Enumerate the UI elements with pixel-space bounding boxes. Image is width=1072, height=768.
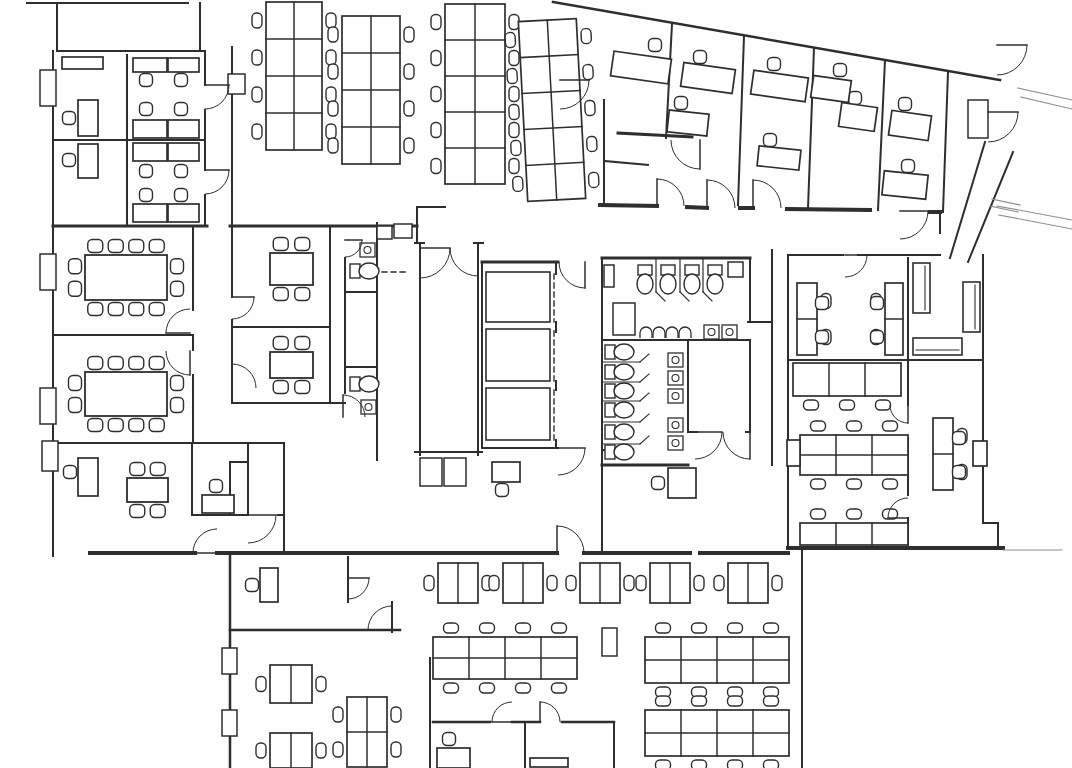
door-swing (657, 179, 684, 206)
door-swing (723, 432, 750, 459)
chair (404, 27, 414, 42)
chair (175, 103, 188, 116)
door-swing (232, 364, 256, 388)
chair (333, 707, 343, 722)
chair (585, 100, 596, 116)
desk (260, 568, 278, 602)
desk-bank (504, 18, 599, 202)
chair (140, 74, 153, 87)
chair (714, 576, 724, 591)
conference-table (270, 253, 313, 285)
chair (130, 505, 145, 518)
toilet-bowl (660, 274, 676, 294)
elevator-cell (486, 388, 550, 440)
chair (63, 112, 76, 125)
chair (728, 696, 743, 706)
chair (404, 64, 414, 79)
chair (728, 623, 743, 633)
chair (834, 64, 847, 77)
chair (516, 683, 531, 693)
door-swing (997, 45, 1027, 75)
door-arc (205, 170, 229, 194)
chair (404, 101, 414, 116)
chair (581, 28, 592, 44)
chair (840, 400, 855, 410)
door-swing (559, 262, 585, 288)
toilet (605, 424, 634, 440)
chair (256, 677, 266, 692)
desk-bank (645, 623, 789, 697)
desk (437, 748, 470, 768)
chair (489, 576, 499, 591)
desk-bank (489, 563, 557, 603)
desk-bank (333, 697, 401, 767)
door-swing (205, 170, 229, 194)
toilet (605, 402, 634, 418)
chair (129, 303, 144, 316)
sink-counter (668, 371, 683, 385)
chair (692, 623, 707, 633)
chair (149, 419, 164, 432)
desk (78, 100, 98, 136)
desk (668, 468, 696, 498)
sink (653, 327, 665, 338)
chair (586, 136, 597, 152)
chair (847, 509, 862, 519)
chair (171, 259, 184, 274)
conference-table (85, 255, 167, 300)
door-swing (540, 702, 560, 722)
desk (800, 523, 908, 545)
chair (69, 259, 82, 274)
chair (847, 479, 862, 489)
desk-bank (328, 16, 414, 164)
stall-partition (640, 414, 649, 422)
window-line (992, 199, 1020, 205)
chair (636, 576, 646, 591)
pilaster (728, 262, 743, 277)
chair (404, 138, 414, 153)
chair (876, 400, 891, 410)
door-swing (348, 578, 369, 599)
door-swing (900, 211, 928, 239)
pilaster (444, 458, 466, 486)
chair (108, 357, 123, 370)
pilaster (42, 441, 58, 471)
chair (273, 238, 288, 251)
door-swing (492, 702, 512, 722)
chair (273, 288, 288, 301)
sink-counter (722, 325, 737, 339)
desk (530, 758, 568, 767)
chair (108, 419, 123, 432)
chair (692, 696, 707, 706)
chair (328, 64, 338, 79)
chair (88, 240, 103, 253)
chair (252, 50, 262, 65)
chair (252, 124, 262, 139)
door-arc (997, 45, 1027, 75)
chair (509, 123, 519, 138)
chair (509, 51, 519, 66)
chair (511, 140, 522, 156)
chair (140, 103, 153, 116)
chair (656, 696, 671, 706)
desk (973, 441, 987, 466)
wall (738, 36, 744, 205)
chair (431, 87, 441, 102)
chair (953, 466, 966, 479)
desk (667, 110, 709, 136)
wall (968, 152, 1013, 262)
chair (129, 240, 144, 253)
chair (328, 138, 338, 153)
desk-bank (566, 563, 634, 603)
door-arc (540, 702, 560, 722)
desk-bank (256, 665, 326, 703)
conference-table (270, 352, 313, 378)
desk-bank (252, 2, 336, 150)
desk-bank (431, 4, 519, 184)
chair (588, 172, 599, 188)
chair (326, 124, 336, 139)
window-line (997, 206, 1072, 220)
chair (175, 74, 188, 87)
desk-bank (800, 509, 908, 545)
chair (69, 398, 82, 413)
pilaster (394, 224, 412, 238)
chair (326, 87, 336, 102)
chair (509, 159, 519, 174)
chair (444, 623, 459, 633)
chair (902, 160, 915, 173)
desk (787, 440, 800, 466)
chair (871, 331, 884, 344)
desk (751, 70, 809, 101)
chair (804, 400, 819, 410)
desk (168, 204, 199, 222)
chair (150, 505, 165, 518)
desk (793, 363, 901, 396)
chair (273, 381, 288, 394)
chair (326, 50, 336, 65)
desk (133, 143, 167, 161)
stall-partition (703, 292, 712, 301)
door-arc (657, 179, 684, 206)
door-arc (232, 364, 256, 388)
door-arc (845, 255, 867, 277)
desk-bank (424, 563, 492, 603)
door-swing (988, 112, 1018, 142)
door-swing (753, 180, 781, 208)
toilet (605, 344, 634, 360)
desk (78, 144, 98, 178)
desk (133, 58, 167, 72)
wall (787, 209, 870, 210)
door-arc (558, 448, 585, 475)
sink (668, 418, 683, 432)
couch-outline (963, 282, 980, 332)
door-swing (420, 248, 450, 278)
wall (605, 161, 648, 165)
toilet (684, 265, 700, 294)
chair (431, 159, 441, 174)
door-swing (368, 606, 392, 630)
chair (108, 303, 123, 316)
chair (480, 623, 495, 633)
door-arc (492, 702, 512, 722)
chair (175, 189, 188, 202)
chair (728, 760, 743, 768)
toilet-bowl (359, 263, 379, 279)
desk-bank (256, 733, 326, 768)
sink-counter (668, 418, 683, 432)
chair (88, 303, 103, 316)
chair (64, 466, 77, 479)
sink-counter (668, 436, 683, 450)
pilaster (40, 254, 56, 290)
toilet-bowl (637, 274, 653, 294)
toilet-bowl (359, 376, 379, 392)
door-swing (248, 515, 276, 543)
chair (69, 376, 82, 391)
wall (808, 48, 814, 208)
pilaster (377, 226, 392, 239)
stall-partition (680, 292, 689, 301)
chair (252, 87, 262, 102)
toilet (350, 263, 379, 279)
conference-table-group (69, 240, 184, 316)
chair (130, 463, 145, 476)
stall-partition (640, 393, 649, 401)
chair (899, 98, 912, 111)
chair (431, 51, 441, 66)
toilet (350, 376, 379, 392)
couch (963, 282, 980, 332)
door-arc (205, 85, 229, 109)
desk-bank (871, 283, 903, 355)
toilet (605, 383, 634, 399)
desk (168, 58, 199, 72)
toilet-bowl (684, 274, 700, 294)
desk (168, 143, 199, 161)
toilet (660, 265, 676, 294)
door-swing (558, 448, 585, 475)
door-swing (232, 297, 254, 319)
chair (480, 683, 495, 693)
door-arc (232, 297, 254, 319)
sink (640, 327, 652, 338)
chair (88, 419, 103, 432)
stall-partition (640, 436, 649, 444)
door-swing (695, 432, 722, 459)
door-arc (900, 211, 928, 239)
door-swing (707, 180, 735, 208)
chair (424, 576, 434, 591)
chair (171, 281, 184, 296)
desk-bank (793, 363, 901, 410)
wall (943, 72, 948, 212)
chair (246, 579, 259, 592)
chair (175, 165, 188, 178)
door-swing (205, 85, 229, 109)
pilaster (222, 648, 237, 674)
chair (649, 39, 662, 52)
toilet-bowl (614, 424, 634, 440)
couch-outline (913, 263, 930, 313)
door-arc (348, 578, 369, 599)
sink-counter (668, 389, 683, 403)
pilaster (420, 458, 442, 486)
chair (953, 432, 966, 445)
chair (871, 297, 884, 310)
conference-table (85, 372, 167, 416)
toilet-bowl (707, 274, 723, 294)
chair (129, 357, 144, 370)
chair (883, 421, 898, 431)
stall-partition (640, 354, 649, 362)
pilaster (602, 628, 617, 656)
desk (611, 51, 672, 84)
pilaster (40, 70, 56, 106)
desk (62, 57, 103, 69)
sink (722, 325, 737, 339)
chair (328, 27, 338, 42)
stall-partition (640, 374, 649, 382)
sink-counter (704, 325, 719, 339)
floor-plan-page (0, 0, 1072, 768)
desk-bank (433, 623, 577, 693)
toilet (605, 444, 634, 460)
chair (811, 479, 826, 489)
sink (360, 243, 375, 257)
desk (888, 110, 931, 140)
chair (675, 97, 688, 110)
desk-bank (645, 696, 789, 768)
toilet (707, 265, 723, 294)
pilaster (40, 388, 56, 424)
door-swing (845, 255, 867, 277)
sink (361, 400, 376, 414)
door-swing (193, 529, 217, 553)
wall (687, 207, 707, 208)
chair (816, 297, 829, 310)
pilaster (613, 303, 635, 335)
sink-counter (361, 400, 376, 414)
chair (694, 576, 704, 591)
sink (704, 325, 719, 339)
door-swing (671, 140, 700, 169)
conference-table-group (69, 357, 184, 432)
door-swing (166, 309, 190, 333)
chair (547, 576, 557, 591)
couch (913, 338, 962, 355)
window-line (999, 215, 1072, 229)
chair (140, 165, 153, 178)
desk (681, 62, 736, 93)
chair (583, 64, 594, 80)
door-arc (753, 180, 781, 208)
door-arc (559, 262, 585, 288)
chair (150, 463, 165, 476)
door-arc (166, 309, 190, 333)
conference-table-group (127, 463, 168, 518)
desk (882, 171, 928, 199)
chair (252, 13, 262, 28)
desk-bank (797, 283, 831, 355)
toilet-bowl (614, 344, 634, 360)
chair (333, 742, 343, 757)
pilaster (604, 265, 614, 287)
sink (668, 389, 683, 403)
chair (129, 419, 144, 432)
chair (811, 509, 826, 519)
chair (328, 101, 338, 116)
door-arc (557, 526, 584, 553)
chair (391, 707, 401, 722)
desk (78, 458, 98, 496)
toilet-bowl (614, 383, 634, 399)
chair (496, 484, 509, 497)
desk (839, 103, 878, 132)
door-arc (707, 180, 735, 208)
couch-outline (913, 338, 962, 355)
door-swing (166, 351, 190, 375)
door-arc (420, 248, 450, 278)
chair (171, 398, 184, 413)
chair (316, 677, 326, 692)
chair (149, 240, 164, 253)
chair (149, 357, 164, 370)
door-arc (166, 351, 190, 375)
door-arc (193, 529, 217, 553)
chair (656, 760, 671, 768)
chair (849, 92, 862, 105)
chair (256, 743, 266, 758)
wall (950, 142, 985, 258)
desk (811, 75, 852, 102)
couch (913, 263, 930, 313)
chair (295, 288, 310, 301)
chair (552, 683, 567, 693)
chair (273, 337, 288, 350)
door-arc (248, 515, 276, 543)
pilaster (228, 74, 245, 94)
chair (692, 760, 707, 768)
chair (764, 134, 777, 147)
chair (431, 15, 441, 30)
chair (811, 421, 826, 431)
door-arc (988, 112, 1018, 142)
desk (757, 146, 801, 170)
chair (444, 683, 459, 693)
desk-bank (636, 563, 704, 603)
sink-counter (668, 353, 683, 367)
chair (507, 68, 518, 84)
chair (509, 104, 520, 120)
chair (443, 733, 456, 746)
desk (168, 120, 199, 138)
chair (431, 123, 441, 138)
toilet-bowl (614, 402, 634, 418)
elevator-cell (486, 329, 550, 381)
elevator-cell (486, 272, 550, 322)
toilet-bowl (614, 364, 634, 380)
chair (768, 58, 781, 71)
sink-counter (360, 243, 375, 257)
chair (656, 623, 671, 633)
door-arc (671, 140, 700, 169)
